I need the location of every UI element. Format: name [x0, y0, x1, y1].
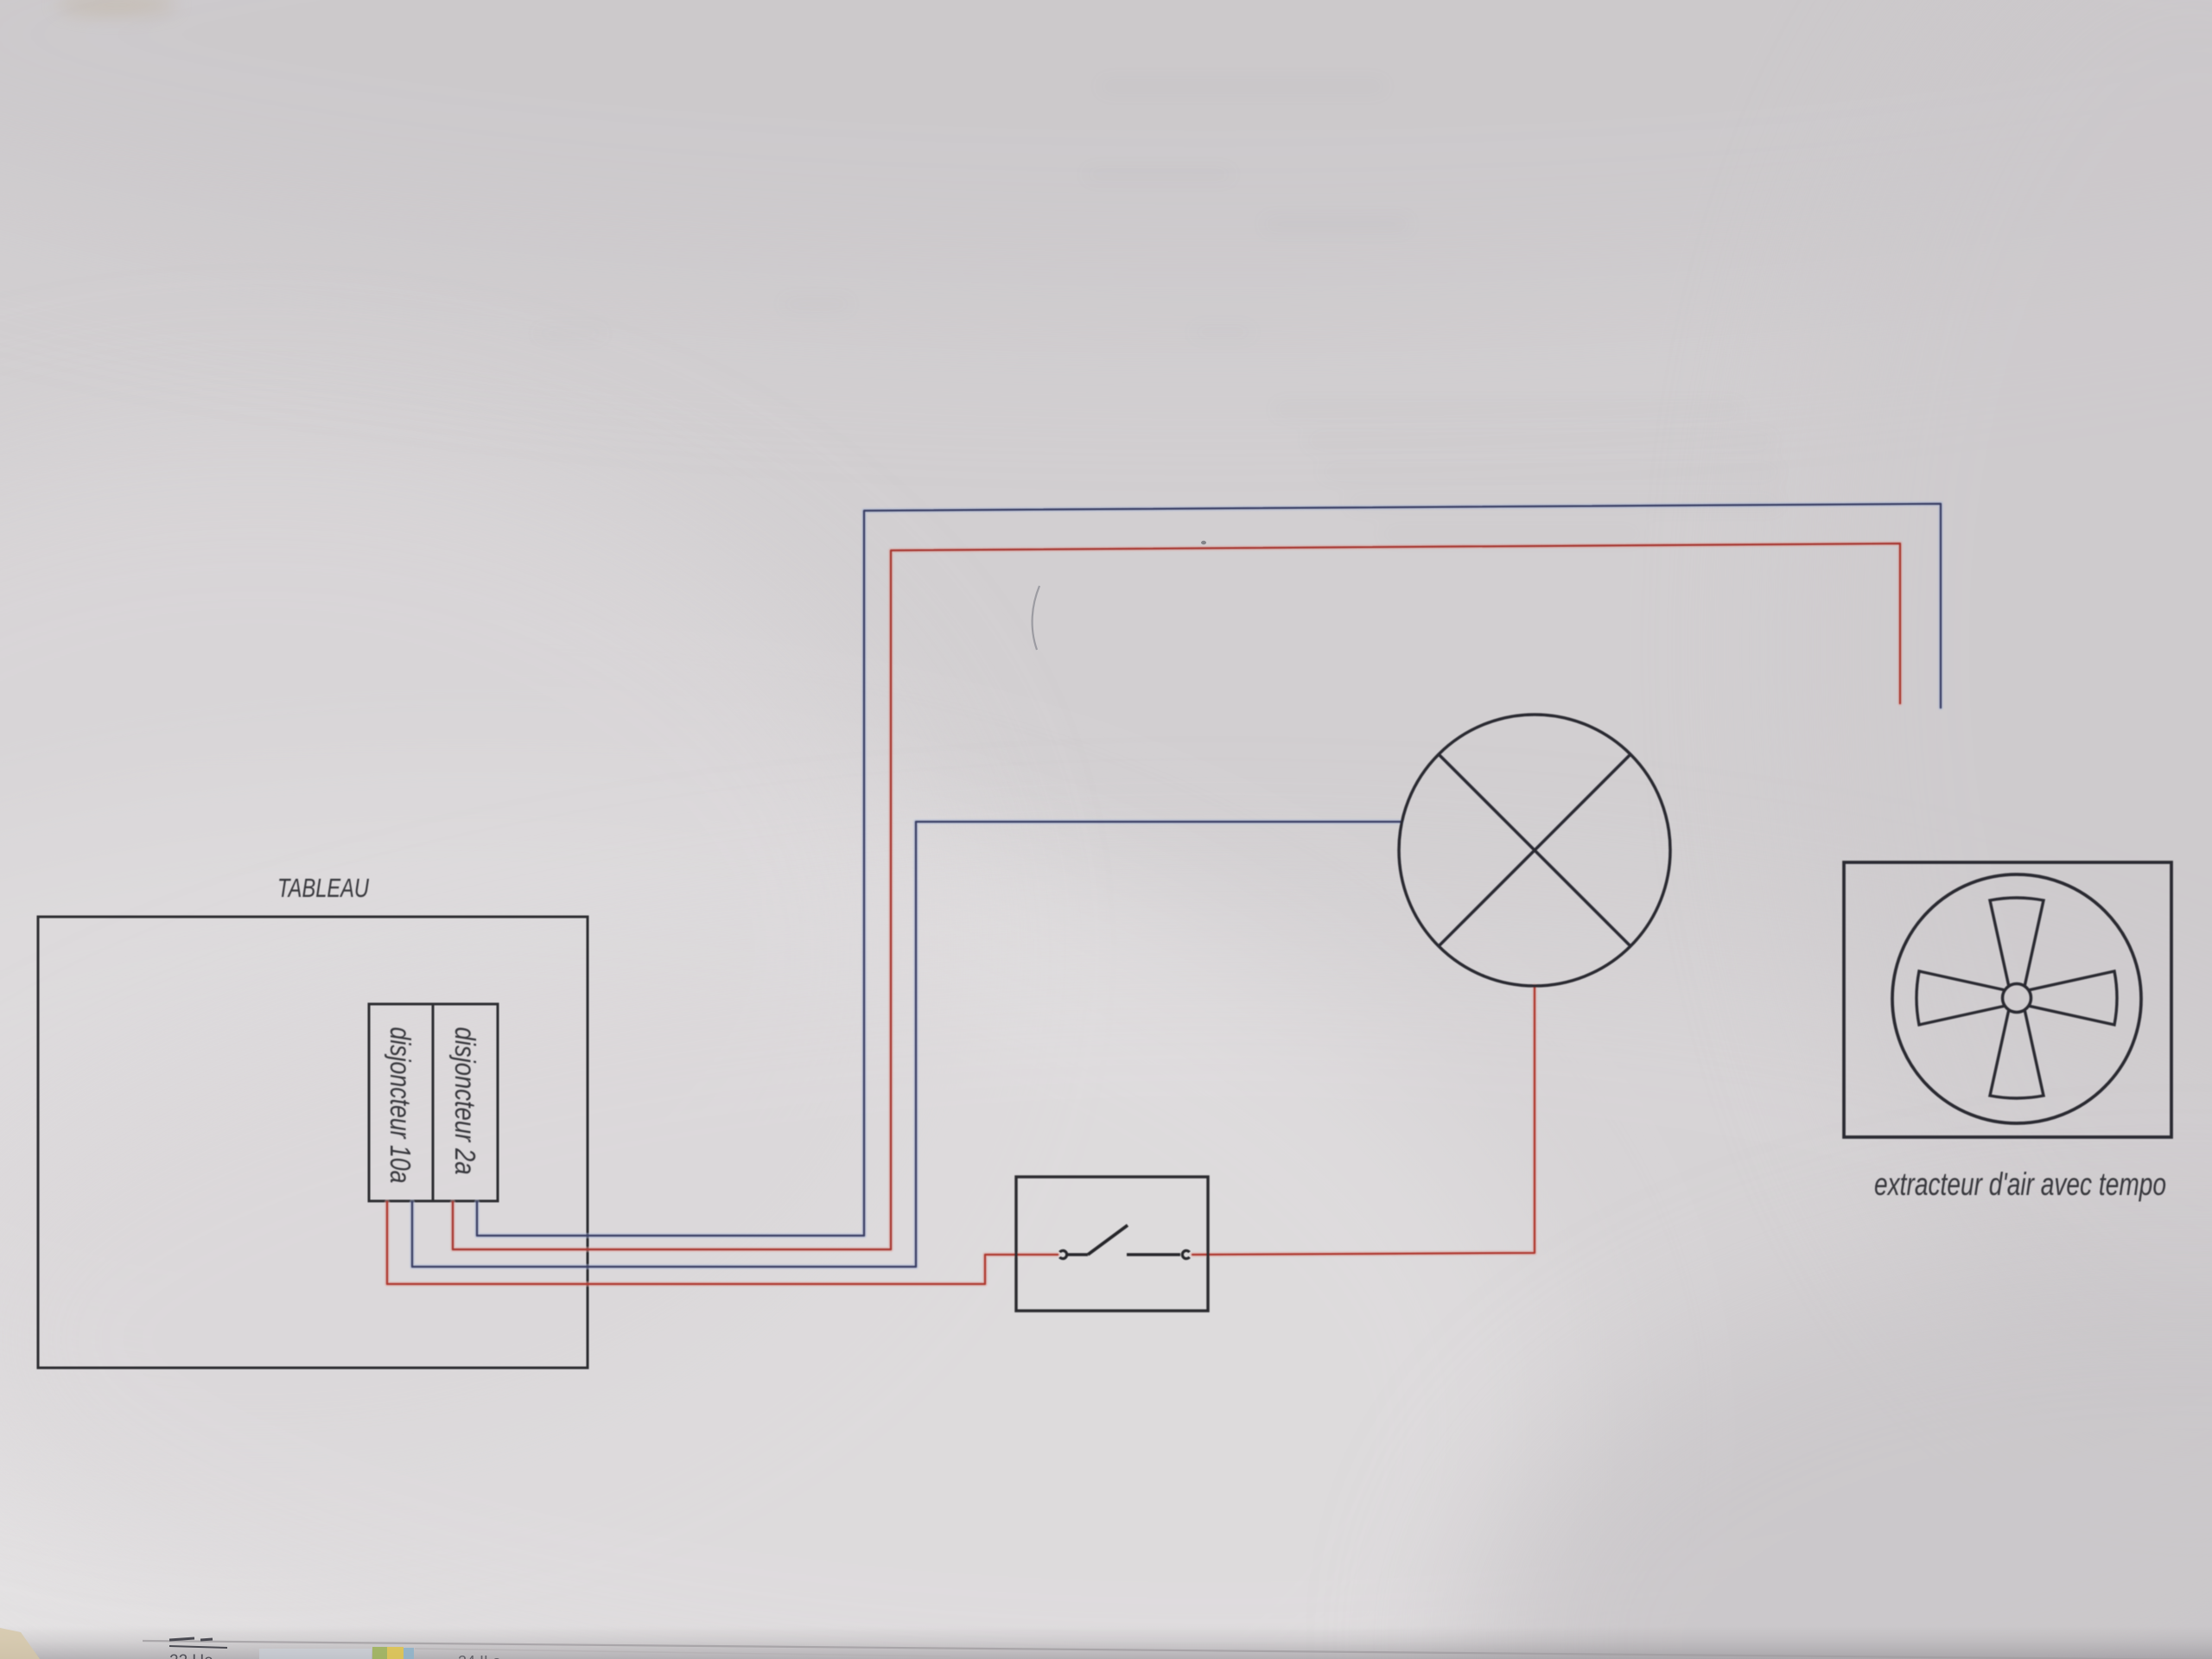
svg-text:disjoncteur 2a: disjoncteur 2a: [449, 1027, 481, 1175]
svg-text:extracteur d'air avec tempo: extracteur d'air avec tempo: [1874, 1166, 2166, 1202]
svg-text:TABLEAU: TABLEAU: [277, 873, 369, 903]
svg-text:22 Ue: 22 Ue: [169, 1652, 213, 1659]
svg-text:disjoncteur 10a: disjoncteur 10a: [385, 1027, 416, 1184]
svg-text:24 ILa: 24 ILa: [458, 1653, 502, 1659]
